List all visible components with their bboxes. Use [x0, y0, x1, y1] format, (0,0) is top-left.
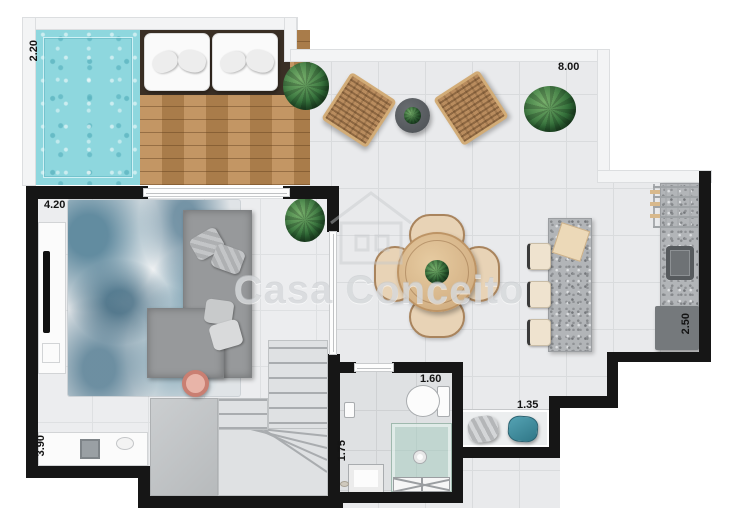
table-centerpiece-plant: [425, 260, 449, 284]
stair-flight-right: [268, 340, 328, 440]
wall-living-right-upper: [327, 186, 339, 232]
dimension-living-width: 4.20: [44, 199, 65, 211]
potted-plant-deck: [283, 62, 329, 110]
wall-bathroom-bottom: [328, 492, 463, 503]
stair-flight-mid: [218, 398, 268, 430]
buffet-tray: [80, 439, 100, 459]
sliding-glass-door: [143, 188, 290, 197]
bath-mat: [393, 477, 450, 492]
rack-handle: [650, 190, 660, 194]
wall-bathroom-left: [328, 354, 340, 503]
potted-plant-living: [285, 198, 325, 242]
pouf-teal: [507, 415, 539, 443]
wall-kitchen-right: [699, 171, 711, 362]
stair-winders: [218, 428, 328, 496]
bar-stool-2: [527, 281, 551, 308]
side-table-plant: [404, 107, 421, 124]
shower-head: [413, 450, 427, 464]
dimension-living-depth: 3.90: [35, 435, 47, 456]
wall-bathroom-top-left: [336, 362, 356, 373]
parapet-top-left: [22, 17, 298, 30]
soap-dish: [340, 481, 349, 487]
potted-plant-terrace: [524, 86, 576, 132]
dimension-terrace: 8.00: [558, 61, 579, 73]
bar-stool-3: [527, 319, 551, 346]
stair-landing: [150, 398, 218, 496]
outside-area: [0, 508, 744, 524]
wall-bathroom-right: [452, 362, 463, 503]
glass-partition: [329, 231, 337, 355]
dimension-bathroom-depth: 1.75: [336, 440, 348, 461]
parapet-terrace-right: [597, 49, 610, 183]
wall-living-bottom: [26, 466, 148, 478]
floor-plan: Casa Conceito 2.20 8.00 4.20 3.90 2.50 1…: [0, 0, 744, 524]
outside-area: [560, 408, 744, 524]
decor-tray: [182, 370, 209, 397]
rack-handle: [650, 202, 660, 206]
dimension-kitchen: 2.50: [680, 313, 692, 334]
parapet-kitchen-top: [597, 170, 712, 183]
dimension-bathroom-width: 1.60: [420, 373, 441, 385]
bathroom-door: [354, 363, 394, 372]
dimension-pool: 2.20: [28, 40, 40, 61]
rack-handle: [650, 214, 660, 218]
bar-stool-1: [527, 243, 551, 270]
tv: [43, 251, 50, 333]
dimension-service: 1.35: [517, 399, 538, 411]
wall-kitchen-bottom: [607, 352, 711, 362]
wall-living-top-left: [26, 186, 148, 199]
av-box: [42, 343, 60, 363]
towel-hook: [344, 402, 355, 418]
cooktop: [655, 306, 699, 350]
wall-niche-bottom: [452, 447, 560, 458]
pool-edge: [43, 37, 133, 178]
bathroom-sink: [348, 464, 384, 493]
wall-stairs-bottom: [138, 496, 343, 508]
kitchen-sink: [666, 246, 694, 280]
toilet-bowl: [406, 385, 440, 417]
buffet-dish: [116, 437, 134, 450]
swimming-pool: [36, 30, 140, 185]
